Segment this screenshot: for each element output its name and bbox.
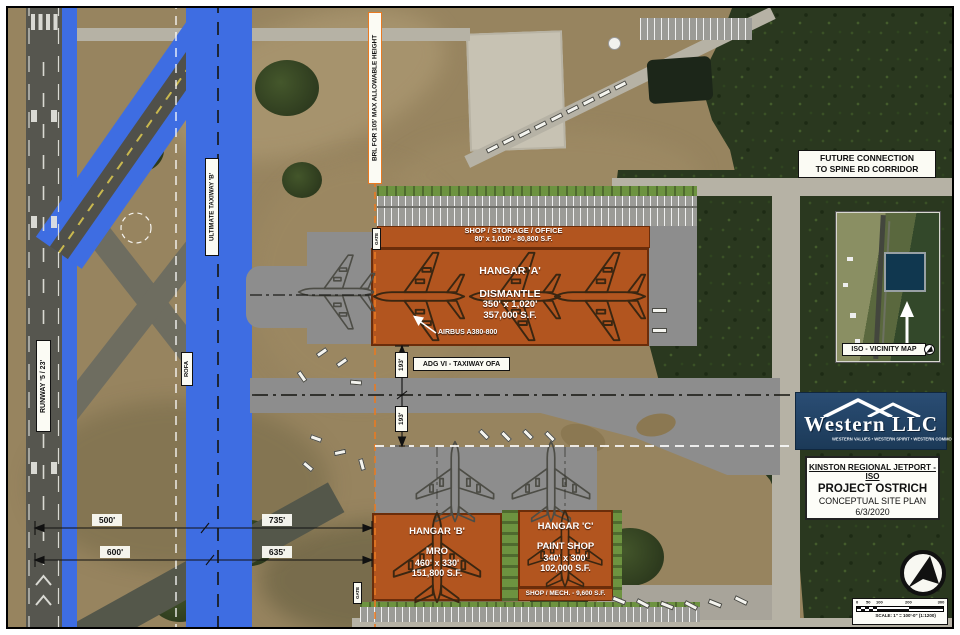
top-parking-lot bbox=[640, 18, 752, 40]
adg-taxiway-label: ADG VI - TAXIWAY OFA bbox=[413, 357, 510, 371]
future-connection-line1: FUTURE CONNECTION bbox=[820, 153, 914, 164]
vicinity-map-label: ISO - VICINITY MAP bbox=[842, 343, 926, 356]
scale-segment-end bbox=[909, 607, 943, 611]
vicinity-building bbox=[850, 313, 856, 318]
hangar-c-east-strip bbox=[613, 510, 622, 601]
scale-tick: 50 bbox=[866, 600, 870, 605]
scale-text: SCALE: 1" = 100'-0" (1:1200) bbox=[875, 613, 924, 618]
dim-635-label: 635' bbox=[262, 546, 292, 558]
dim-193-north-label: 193' bbox=[395, 352, 408, 378]
scale-tick: 200 bbox=[905, 600, 912, 605]
north-landscape-strip bbox=[377, 186, 697, 196]
truck-icon bbox=[652, 308, 667, 313]
western-llc-logo: Western LLC WESTERN VALUES • WESTERN SPI… bbox=[795, 392, 947, 450]
vicinity-building bbox=[843, 283, 848, 287]
truck-icon bbox=[358, 458, 366, 471]
gate-label-north: GATE bbox=[372, 228, 381, 250]
title-project-line1: KINSTON REGIONAL JETPORT - ISO bbox=[807, 463, 938, 481]
gate-label-south: GATE bbox=[353, 582, 362, 604]
runway-label: RUNWAY '5 / 23' bbox=[36, 340, 51, 432]
vicinity-map: ISO - VICINITY MAP bbox=[836, 212, 940, 362]
scale-tick: 0 bbox=[856, 600, 858, 605]
storage-dome bbox=[608, 37, 621, 50]
truck-icon bbox=[500, 430, 512, 442]
aircraft-silhouette bbox=[390, 511, 484, 605]
title-date: 6/3/2020 bbox=[807, 507, 938, 517]
scale-bar-graphic bbox=[856, 606, 944, 612]
scale-tick: 300 bbox=[937, 600, 944, 605]
runway bbox=[26, 6, 62, 629]
dim-735-label: 735' bbox=[262, 514, 292, 526]
top-road bbox=[55, 28, 470, 41]
tree-clump bbox=[282, 162, 322, 198]
aircraft-silhouette bbox=[297, 252, 377, 332]
dim-600-label: 600' bbox=[100, 546, 130, 558]
logo-wordmark: Western LLC bbox=[796, 412, 946, 437]
title-project-line3: CONCEPTUAL SITE PLAN bbox=[807, 496, 938, 506]
truck-icon bbox=[652, 328, 667, 333]
vicinity-emblem-icon bbox=[924, 344, 935, 355]
scale-tick: 100 bbox=[876, 600, 883, 605]
truck-icon bbox=[334, 449, 347, 456]
site-plan-sheet: SHOP / STORAGE / OFFICE 80' x 1,010' - 8… bbox=[0, 0, 960, 635]
scale-segment-mid bbox=[879, 607, 908, 611]
brl-label: BRL FOR 105' MAX ALLOWABLE HEIGHT bbox=[368, 12, 382, 184]
dim-500-label: 500' bbox=[92, 514, 122, 526]
aircraft-silhouette bbox=[525, 509, 605, 589]
truck-icon bbox=[522, 428, 534, 440]
south-parking bbox=[360, 607, 700, 622]
truck-icon bbox=[310, 434, 323, 443]
ultimate-taxiway-label: ULTIMATE TAXIWAY 'B' bbox=[205, 158, 219, 256]
aerial-world: SHOP / STORAGE / OFFICE 80' x 1,010' - 8… bbox=[6, 6, 954, 629]
truck-icon bbox=[478, 428, 490, 440]
title-block: KINSTON REGIONAL JETPORT - ISO PROJECT O… bbox=[805, 456, 940, 520]
tree-clump bbox=[255, 60, 319, 116]
aerial-photo-frame: SHOP / STORAGE / OFFICE 80' x 1,010' - 8… bbox=[6, 6, 954, 629]
vicinity-building bbox=[847, 257, 853, 261]
future-connection-line2: TO SPINE RD CORRIDOR bbox=[816, 164, 919, 175]
shop-storage-office-building bbox=[377, 226, 650, 248]
vicinity-site-rect bbox=[884, 252, 926, 292]
logo-tagline: WESTERN VALUES • WESTERN SPIRIT • WESTER… bbox=[832, 437, 910, 442]
airbus-callout-label: AIRBUS A380-800 bbox=[438, 329, 497, 336]
future-connection-label: FUTURE CONNECTION TO SPINE RD CORRIDOR bbox=[798, 150, 936, 178]
scale-segment-checker bbox=[857, 607, 879, 611]
dim-193-south-label: 193' bbox=[395, 406, 408, 432]
north-arrow-icon bbox=[898, 548, 948, 598]
pond bbox=[647, 56, 714, 104]
rofa-label: ROFA bbox=[181, 352, 193, 386]
scale-ticks: 0 50 100 200 300 bbox=[856, 600, 944, 606]
north-parking bbox=[377, 196, 697, 226]
aircraft-silhouette bbox=[553, 249, 648, 344]
scale-bar: 0 50 100 200 300 SCALE: 1" = 100'-0" (1:… bbox=[852, 598, 948, 625]
runway-blue-stripe bbox=[62, 6, 77, 629]
ultimate-taxiway-b-band bbox=[186, 6, 252, 629]
title-project-line2: PROJECT OSTRICH bbox=[807, 483, 938, 495]
shop-mech-building bbox=[518, 588, 613, 601]
truck-icon bbox=[350, 379, 362, 385]
